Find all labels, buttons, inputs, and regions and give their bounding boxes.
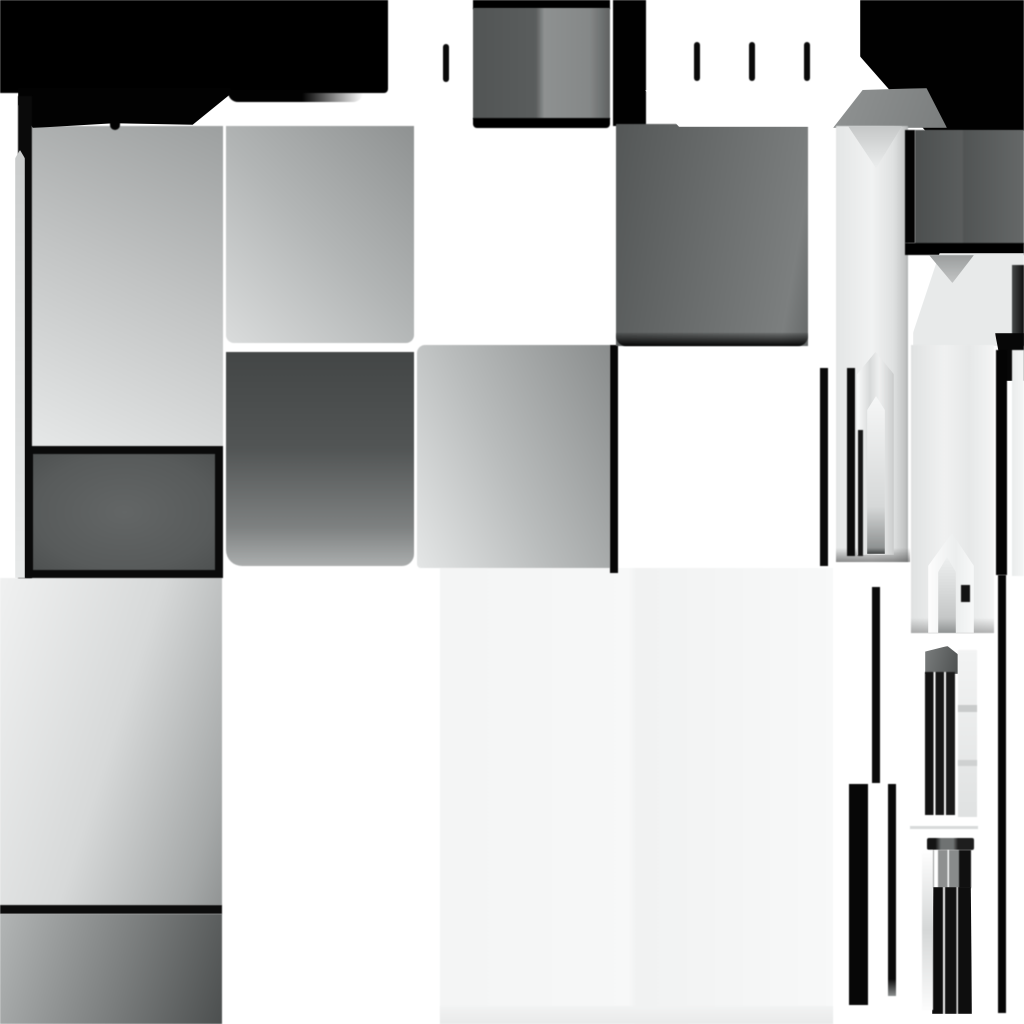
top-black-tongue <box>18 88 231 128</box>
right-edge-light-strip <box>1012 350 1024 576</box>
baked-texture-atlas <box>0 0 1024 1024</box>
white-pocket-extension <box>645 90 835 127</box>
bottom-center-panel-footer <box>440 1006 833 1024</box>
tick-mark-3 <box>749 42 755 81</box>
cluster1-cap <box>925 646 958 674</box>
upper-right-tile-bottom-shadow <box>616 333 808 346</box>
top-black-lip <box>228 90 363 102</box>
upper-mid-gray-tile <box>226 126 414 343</box>
cluster1-strip-segment-1 <box>958 705 977 712</box>
top-left-black-block <box>0 0 388 93</box>
small-arch-inner-shaft <box>938 557 956 633</box>
cluster2-cap <box>927 838 974 850</box>
cluster1-strip-segment-2 <box>958 760 977 766</box>
cluster2-left-fade-strip <box>922 850 933 1010</box>
right-black-bar-lower <box>998 575 1006 1013</box>
left-lower-gradient-tile <box>0 578 222 905</box>
center-tile-right-black-edge <box>610 345 618 573</box>
center-gray-tile <box>417 345 610 568</box>
cluster1-black-shafts <box>925 672 955 815</box>
left-edge-gray-sliver <box>15 150 25 578</box>
cluster-divider-line <box>910 826 978 829</box>
framed-dark-tile <box>25 446 223 578</box>
lancet-window-inner-line <box>858 430 863 556</box>
lancet-window-inner-shaft <box>867 396 885 554</box>
bottom-center-pale-panel <box>440 568 833 1024</box>
thin-bar-left-of-arch <box>820 368 828 566</box>
upper-left-light-tile <box>32 126 223 446</box>
small-arch-black-notch <box>961 585 970 602</box>
top-connector-black-strip <box>613 0 646 126</box>
upper-right-dark-tile <box>616 124 808 346</box>
column2-wide-top <box>913 253 1024 346</box>
lancet-window-black-line <box>847 368 855 556</box>
cluster1-right-light-strip <box>958 650 977 817</box>
tick-mark-4 <box>804 42 810 81</box>
right-black-bar-upper <box>996 350 1007 575</box>
cluster2-mid-stripes <box>929 850 971 888</box>
thin-black-bar-lower-right <box>888 784 896 996</box>
mid-dark-gray-tile <box>226 352 414 566</box>
left-bottom-dark-gradient-tile <box>0 914 222 1024</box>
tick-mark-2 <box>694 42 700 81</box>
dark-square-left-black-edge <box>905 130 915 243</box>
cluster2-black-shafts <box>932 887 972 1014</box>
left-lower-black-bar <box>0 905 222 914</box>
thick-black-bar-lower-left <box>849 784 868 1005</box>
right-dark-square-tile <box>915 130 1024 244</box>
tick-mark-1 <box>443 44 449 82</box>
thin-black-bar-middle <box>872 587 880 783</box>
top-split-tile-bottom-black <box>473 118 610 128</box>
top-split-gray-tile <box>473 8 610 119</box>
